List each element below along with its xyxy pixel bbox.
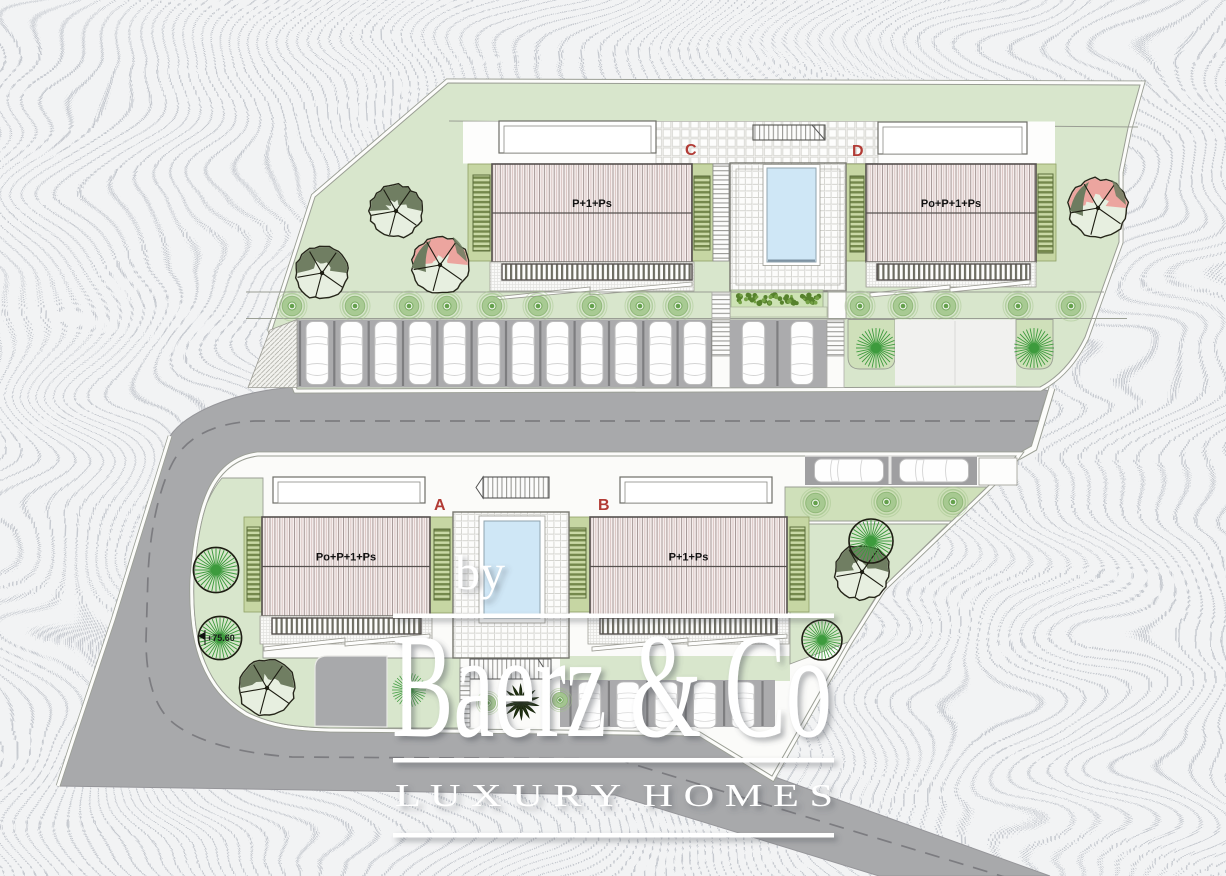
svg-text:Baerz & Co: Baerz & Co [392,602,832,768]
svg-text:+75.60: +75.60 [207,633,235,643]
svg-text:Po+P+1+Ps: Po+P+1+Ps [316,552,376,564]
svg-text:B: B [598,497,610,514]
svg-text:L U X U R Y H O M E S: L U X U R Y H O M E S [395,777,833,813]
svg-text:Po+P+1+Ps: Po+P+1+Ps [921,198,981,210]
svg-text:P+1+Ps: P+1+Ps [669,552,709,564]
svg-text:P+1+Ps: P+1+Ps [572,198,612,210]
svg-text:by: by [455,544,505,600]
svg-text:D: D [852,143,864,160]
svg-text:C: C [685,142,697,159]
svg-text:A: A [434,497,446,514]
